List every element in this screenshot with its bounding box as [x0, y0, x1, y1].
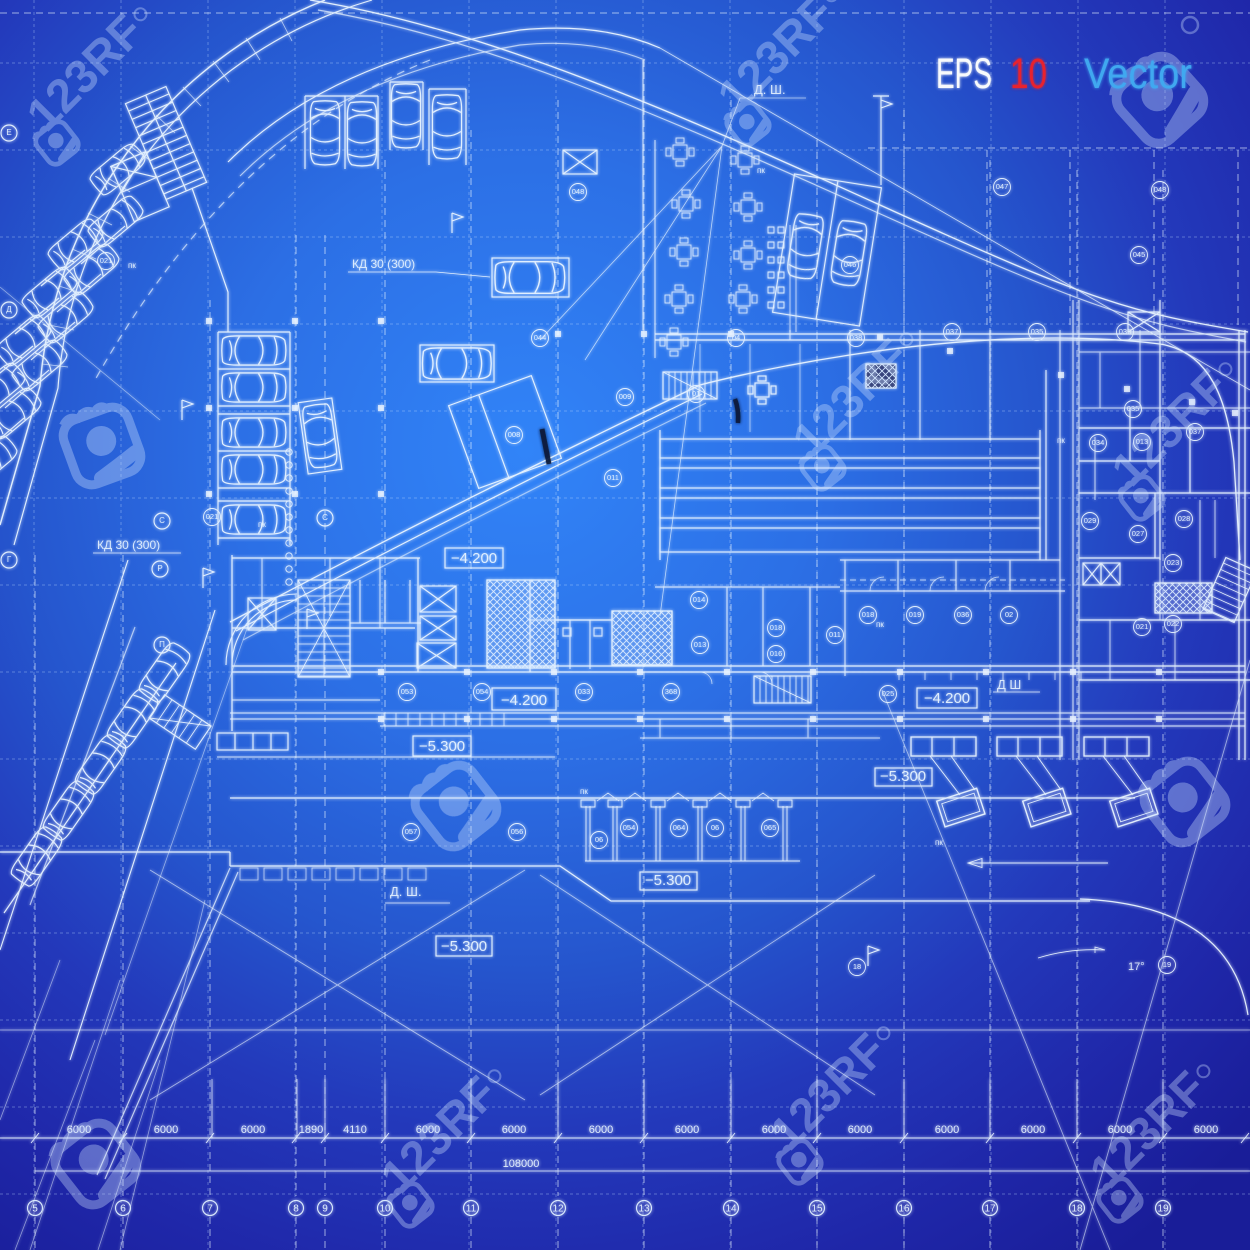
svg-text:6000: 6000 — [1021, 1124, 1045, 1136]
svg-text:054: 054 — [623, 823, 636, 832]
svg-text:036: 036 — [957, 610, 970, 619]
svg-text:9: 9 — [322, 1204, 328, 1215]
svg-text:18: 18 — [1071, 1204, 1083, 1215]
svg-text:6000: 6000 — [589, 1124, 613, 1136]
svg-text:035: 035 — [1031, 327, 1044, 336]
svg-text:Д Ш: Д Ш — [997, 677, 1021, 692]
svg-text:С: С — [159, 516, 165, 525]
svg-text:12: 12 — [552, 1204, 564, 1215]
svg-text:18: 18 — [853, 962, 861, 971]
svg-text:368: 368 — [665, 687, 678, 696]
svg-text:037: 037 — [946, 327, 959, 336]
svg-text:13: 13 — [638, 1204, 650, 1215]
svg-text:7: 7 — [207, 1204, 213, 1215]
svg-text:01: 01 — [692, 389, 700, 398]
svg-text:8: 8 — [293, 1204, 299, 1215]
svg-text:16: 16 — [898, 1204, 910, 1215]
svg-text:пк: пк — [580, 787, 588, 796]
svg-text:038: 038 — [850, 333, 863, 342]
svg-text:057: 057 — [405, 827, 418, 836]
svg-text:035: 035 — [1127, 404, 1140, 413]
svg-text:−5.300: −5.300 — [880, 768, 926, 785]
svg-text:КД 30 (300): КД 30 (300) — [97, 538, 160, 552]
svg-text:−5.300: −5.300 — [645, 872, 691, 889]
svg-text:018: 018 — [862, 610, 875, 619]
svg-text:013: 013 — [694, 640, 707, 649]
svg-text:6: 6 — [120, 1204, 126, 1215]
svg-text:17: 17 — [984, 1204, 996, 1215]
svg-text:11: 11 — [466, 1204, 477, 1215]
svg-text:С: С — [322, 513, 328, 522]
svg-text:044: 044 — [534, 333, 547, 342]
svg-text:15: 15 — [811, 1204, 823, 1215]
svg-text:1890: 1890 — [299, 1124, 323, 1136]
svg-text:Е: Е — [6, 128, 11, 137]
svg-text:023: 023 — [1167, 558, 1180, 567]
svg-text:6000: 6000 — [675, 1124, 699, 1136]
svg-text:06: 06 — [711, 823, 719, 832]
svg-text:021: 021 — [100, 256, 113, 265]
svg-text:019: 019 — [909, 610, 922, 619]
svg-text:025: 025 — [882, 689, 895, 698]
svg-text:029: 029 — [1084, 516, 1097, 525]
svg-text:027: 027 — [1132, 529, 1145, 538]
svg-text:009: 009 — [619, 392, 632, 401]
svg-text:пк: пк — [876, 620, 884, 629]
svg-text:021: 021 — [1136, 622, 1149, 631]
svg-text:6000: 6000 — [502, 1124, 526, 1136]
svg-text:6000: 6000 — [848, 1124, 872, 1136]
svg-text:045: 045 — [1133, 250, 1146, 259]
svg-text:021: 021 — [206, 512, 219, 521]
svg-text:6000: 6000 — [241, 1124, 265, 1136]
svg-text:−4.200: −4.200 — [451, 550, 497, 567]
svg-text:5: 5 — [32, 1204, 38, 1215]
svg-text:6000: 6000 — [1194, 1124, 1218, 1136]
svg-text:06: 06 — [595, 835, 603, 844]
svg-text:028: 028 — [1178, 514, 1191, 523]
svg-text:6000: 6000 — [935, 1124, 959, 1136]
svg-text:048: 048 — [572, 187, 585, 196]
svg-text:−5.300: −5.300 — [419, 738, 465, 755]
svg-text:016: 016 — [770, 649, 783, 658]
svg-text:19: 19 — [1163, 960, 1171, 969]
svg-text:046: 046 — [844, 260, 857, 269]
svg-text:пк: пк — [258, 520, 266, 529]
svg-text:022: 022 — [1167, 619, 1180, 628]
svg-text:пк: пк — [757, 166, 765, 175]
svg-text:пк: пк — [1057, 436, 1065, 445]
svg-text:пк: пк — [935, 838, 943, 847]
svg-text:6000: 6000 — [154, 1124, 178, 1136]
svg-text:пк: пк — [128, 261, 136, 270]
svg-text:064: 064 — [673, 823, 686, 832]
svg-text:108000: 108000 — [503, 1158, 540, 1170]
svg-text:056: 056 — [511, 827, 524, 836]
svg-text:14: 14 — [725, 1204, 737, 1215]
svg-text:17°: 17° — [1128, 961, 1145, 973]
svg-text:033: 033 — [578, 687, 591, 696]
svg-text:008: 008 — [508, 430, 521, 439]
svg-text:Г: Г — [7, 555, 12, 564]
svg-text:−5.300: −5.300 — [441, 938, 487, 955]
svg-text:048: 048 — [1154, 185, 1167, 194]
svg-text:018: 018 — [770, 623, 783, 632]
svg-text:02: 02 — [1005, 610, 1013, 619]
svg-text:011: 011 — [607, 473, 619, 482]
svg-text:Д. Ш.: Д. Ш. — [390, 884, 422, 899]
svg-text:047: 047 — [996, 182, 1009, 191]
svg-text:19: 19 — [1157, 1204, 1169, 1215]
svg-text:Д: Д — [6, 305, 12, 314]
svg-text:011: 011 — [829, 630, 841, 639]
svg-text:−4.200: −4.200 — [924, 690, 970, 707]
svg-text:053: 053 — [401, 687, 414, 696]
svg-text:Р: Р — [157, 564, 162, 573]
svg-text:065: 065 — [764, 823, 777, 832]
svg-text:036: 036 — [1119, 327, 1132, 336]
svg-text:034: 034 — [1092, 438, 1105, 447]
svg-text:4110: 4110 — [343, 1124, 367, 1136]
svg-text:П: П — [159, 640, 165, 649]
svg-text:−4.200: −4.200 — [501, 692, 547, 709]
svg-text:04: 04 — [732, 333, 740, 342]
svg-text:054: 054 — [476, 687, 489, 696]
svg-text:КД 30 (300): КД 30 (300) — [352, 257, 415, 271]
svg-text:014: 014 — [693, 595, 706, 604]
